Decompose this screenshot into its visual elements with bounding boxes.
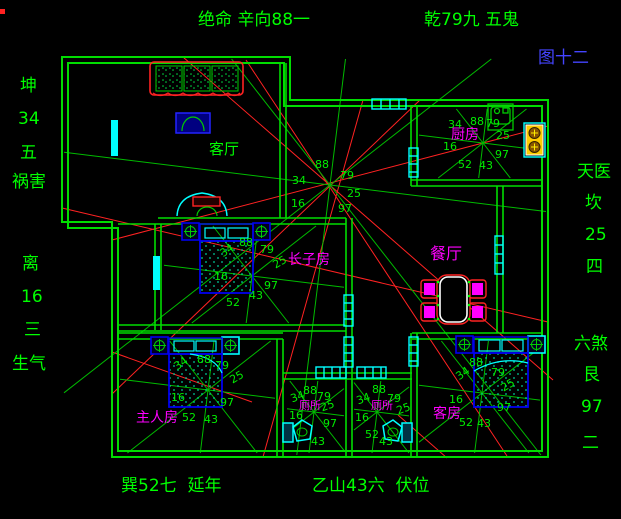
left-label-li: 离 [22,256,39,273]
stove [524,123,545,157]
room-label-dining: 餐厅 [430,246,462,262]
num-eldest-43: 43 [249,290,263,301]
num-kitchen-34: 34 [448,119,462,130]
left-label-huohai: 祸害 [12,174,46,191]
num-guest-16: 16 [449,394,463,405]
num-eldest-79: 79 [260,244,274,255]
door-living [111,120,118,156]
num-kitchen-79: 79 [486,118,500,129]
toilet-left [283,420,312,442]
num-guest-52: 52 [459,417,473,428]
right-label-tianyi: 天医 [577,164,611,181]
num-master-79: 79 [215,360,229,371]
num-house-88: 88 [315,159,329,170]
figure-number: 图十二 [538,50,589,67]
door-closet [153,256,160,290]
num-kitchen-43: 43 [479,160,493,171]
right-label-er: 二 [582,435,599,452]
num-toiletL-88: 88 [303,385,317,396]
num-kitchen-25: 25 [496,130,510,141]
bottom-label-yishan: 乙山43六 伏位 [312,478,429,495]
num-guest-79: 79 [491,367,505,378]
num-eldest-97: 97 [264,280,278,291]
num-guest-88: 88 [469,357,483,368]
num-kitchen-97: 97 [495,149,509,160]
top-label-qian: 乾79九 五鬼 [424,12,519,29]
left-label-shengqi: 生气 [12,356,46,373]
left-label-wu: 五 [20,145,37,162]
num-toiletR-52: 52 [365,429,379,440]
num-kitchen-16: 16 [443,141,457,152]
num-master-52: 52 [182,412,196,423]
num-eldest-88: 88 [239,237,253,248]
num-master-43: 43 [204,414,218,425]
num-house-16: 16 [291,198,305,209]
num-kitchen-88: 88 [470,116,484,127]
num-toiletL-16: 16 [289,410,303,421]
num-eldest-52: 52 [226,297,240,308]
num-master-97: 97 [220,397,234,408]
left-label-kun: 坤 [20,78,37,95]
room-label-living: 客厅 [209,142,239,157]
room-label-master: 主人房 [136,411,178,425]
num-house-25: 25 [347,188,361,199]
num-master-88: 88 [197,354,211,365]
red-corner-mark [0,9,5,14]
left-label-san: 三 [24,322,41,339]
bottom-label-xun: 巽52七 延年 [121,478,221,495]
right-label-liusha: 六煞 [574,336,608,353]
tv-cabinet [177,193,227,216]
cabinet [176,113,210,133]
room-label-guest: 客房 [433,407,461,421]
num-eldest-16: 16 [214,271,228,282]
right-label-97: 97 [581,399,603,416]
num-house-79: 79 [340,170,354,181]
right-label-gen: 艮 [583,367,600,384]
num-toiletL-43: 43 [311,436,325,447]
fengshui-floorplan: 绝命 辛向88一乾79九 五鬼图十二坤34五祸害离16三生气天医坎25四六煞艮9… [0,0,621,519]
num-house-97: 97 [338,203,352,214]
num-toiletL-97: 97 [323,418,337,429]
dining-table [421,275,486,324]
room-label-eldest-son: 长子房 [288,253,330,267]
sofa [150,62,243,96]
left-label-16: 16 [21,289,43,306]
num-kitchen-52: 52 [458,159,472,170]
num-guest-97: 97 [497,402,511,413]
right-label-kan: 坎 [585,195,602,212]
left-label-34: 34 [18,111,40,128]
num-toiletR-88: 88 [372,384,386,395]
num-toiletR-43: 43 [379,436,393,447]
num-house-34: 34 [292,175,306,186]
right-label-si: 四 [586,259,603,276]
num-guest-43: 43 [477,418,491,429]
num-master-16: 16 [171,392,185,403]
top-label-jueming: 绝命 辛向88一 [198,12,310,29]
num-toiletR-16: 16 [355,412,369,423]
right-label-25: 25 [585,227,607,244]
